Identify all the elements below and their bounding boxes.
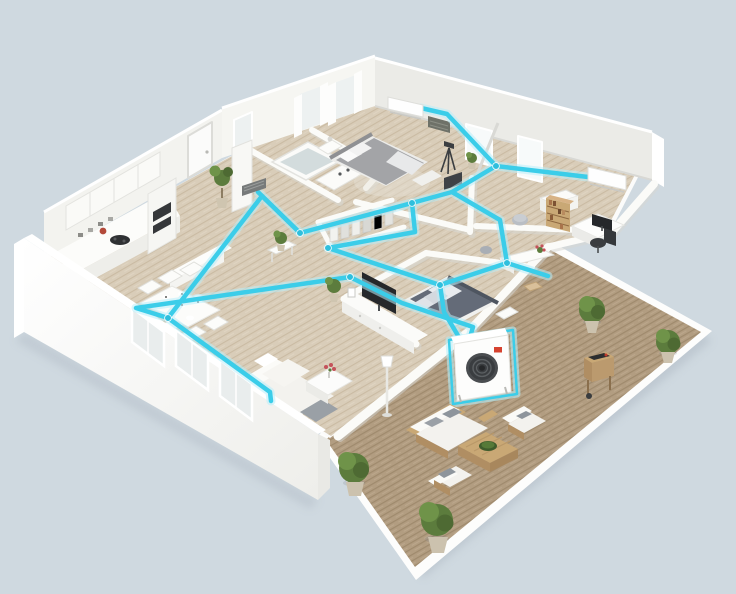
curtain	[294, 94, 302, 138]
east-wall-cap	[652, 132, 664, 187]
cooktop	[110, 235, 130, 245]
curtain	[320, 82, 328, 126]
outdoor-condenser-unit	[449, 328, 517, 404]
floorplan-stage: Isometric cutaway apartment floor plan w…	[0, 0, 736, 594]
wall-kitchen-column	[232, 140, 252, 212]
red-pot	[100, 228, 107, 235]
curtain	[354, 70, 362, 114]
unit-fan-hub	[479, 365, 485, 371]
unit-logo	[494, 347, 502, 353]
stool	[502, 271, 512, 277]
front-wall-west-cap	[14, 238, 24, 338]
photo-frame	[348, 288, 355, 297]
floorplan-scene: Isometric cutaway apartment floor plan w…	[0, 0, 736, 594]
curtain	[328, 82, 336, 126]
pouf	[480, 246, 492, 254]
